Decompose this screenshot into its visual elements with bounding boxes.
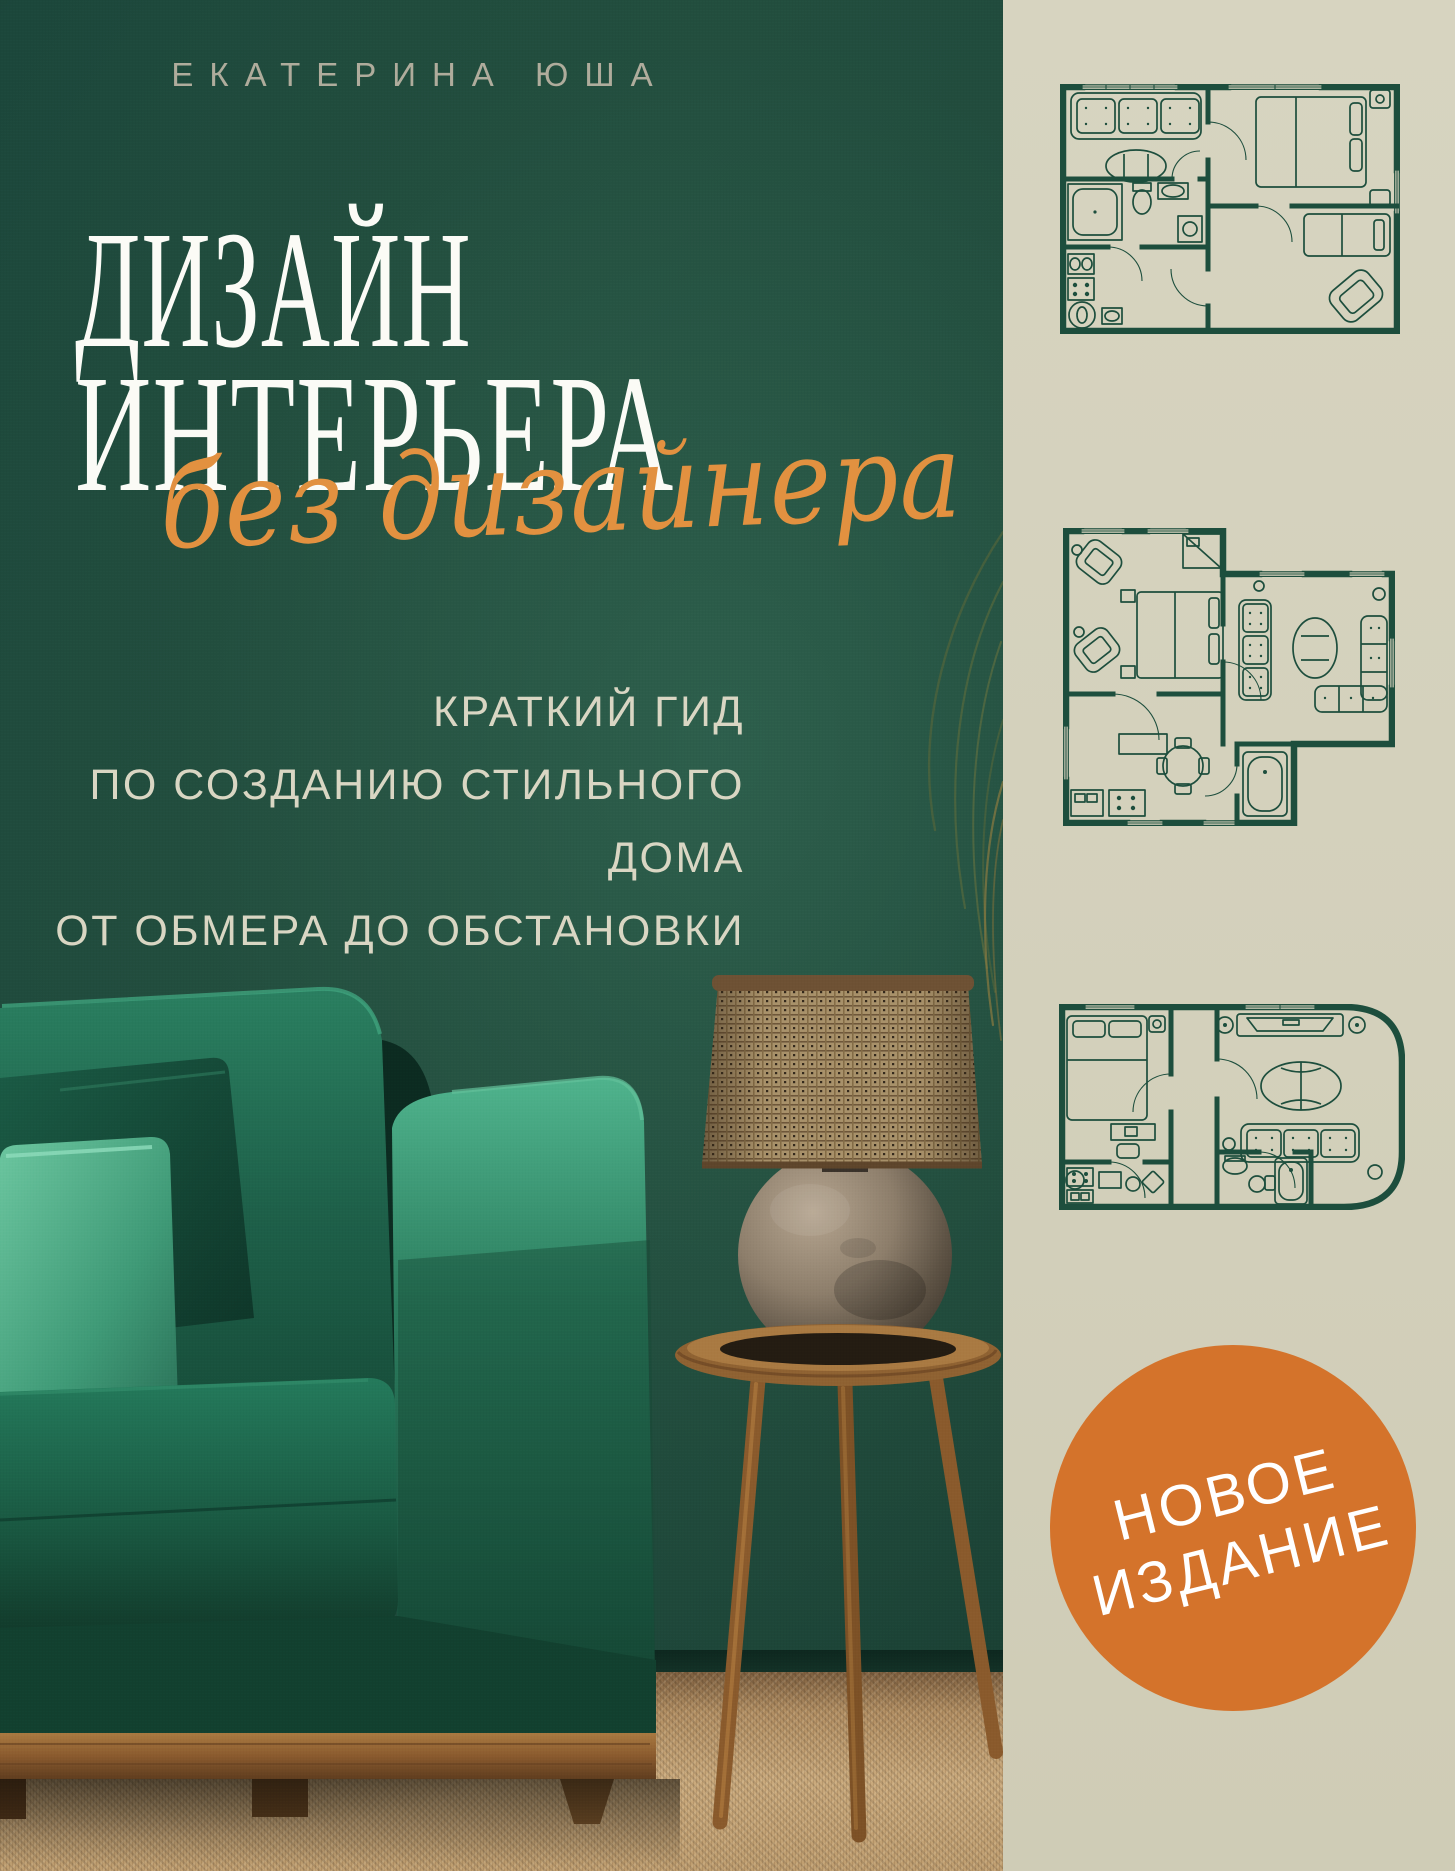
subtitle: КРАТКИЙ ГИД ПО СОЗДАНИЮ СТИЛЬНОГО ДОМА О… [0, 676, 745, 968]
subtitle-line: ПО СОЗДАНИЮ СТИЛЬНОГО ДОМА [0, 749, 745, 895]
author-name: ЕКАТЕРИНА ЮША [0, 56, 840, 94]
sofa-illustration [0, 960, 680, 1871]
side-panel: НОВОЕ ИЗДАНИЕ [1003, 0, 1455, 1871]
floor-plan-middle-icon [1063, 528, 1395, 826]
subtitle-line: ОТ ОБМЕРА ДО ОБСТАНОВКИ [0, 895, 745, 968]
book-cover: ЕКАТЕРИНА ЮША ДИЗАЙН ИНТЕРЬЕРА без дизай… [0, 0, 1455, 1871]
side-table-lamp-illustration [600, 960, 1003, 1871]
subtitle-line: КРАТКИЙ ГИД [0, 676, 745, 749]
new-edition-badge: НОВОЕ ИЗДАНИЕ [1050, 1345, 1416, 1711]
floor-plan-top-icon [1060, 84, 1400, 334]
badge-text: НОВОЕ ИЗДАНИЕ [1069, 1425, 1398, 1631]
photo-area: ЕКАТЕРИНА ЮША ДИЗАЙН ИНТЕРЬЕРА без дизай… [0, 0, 1003, 1871]
floor-plan-bottom-icon [1059, 1004, 1405, 1210]
